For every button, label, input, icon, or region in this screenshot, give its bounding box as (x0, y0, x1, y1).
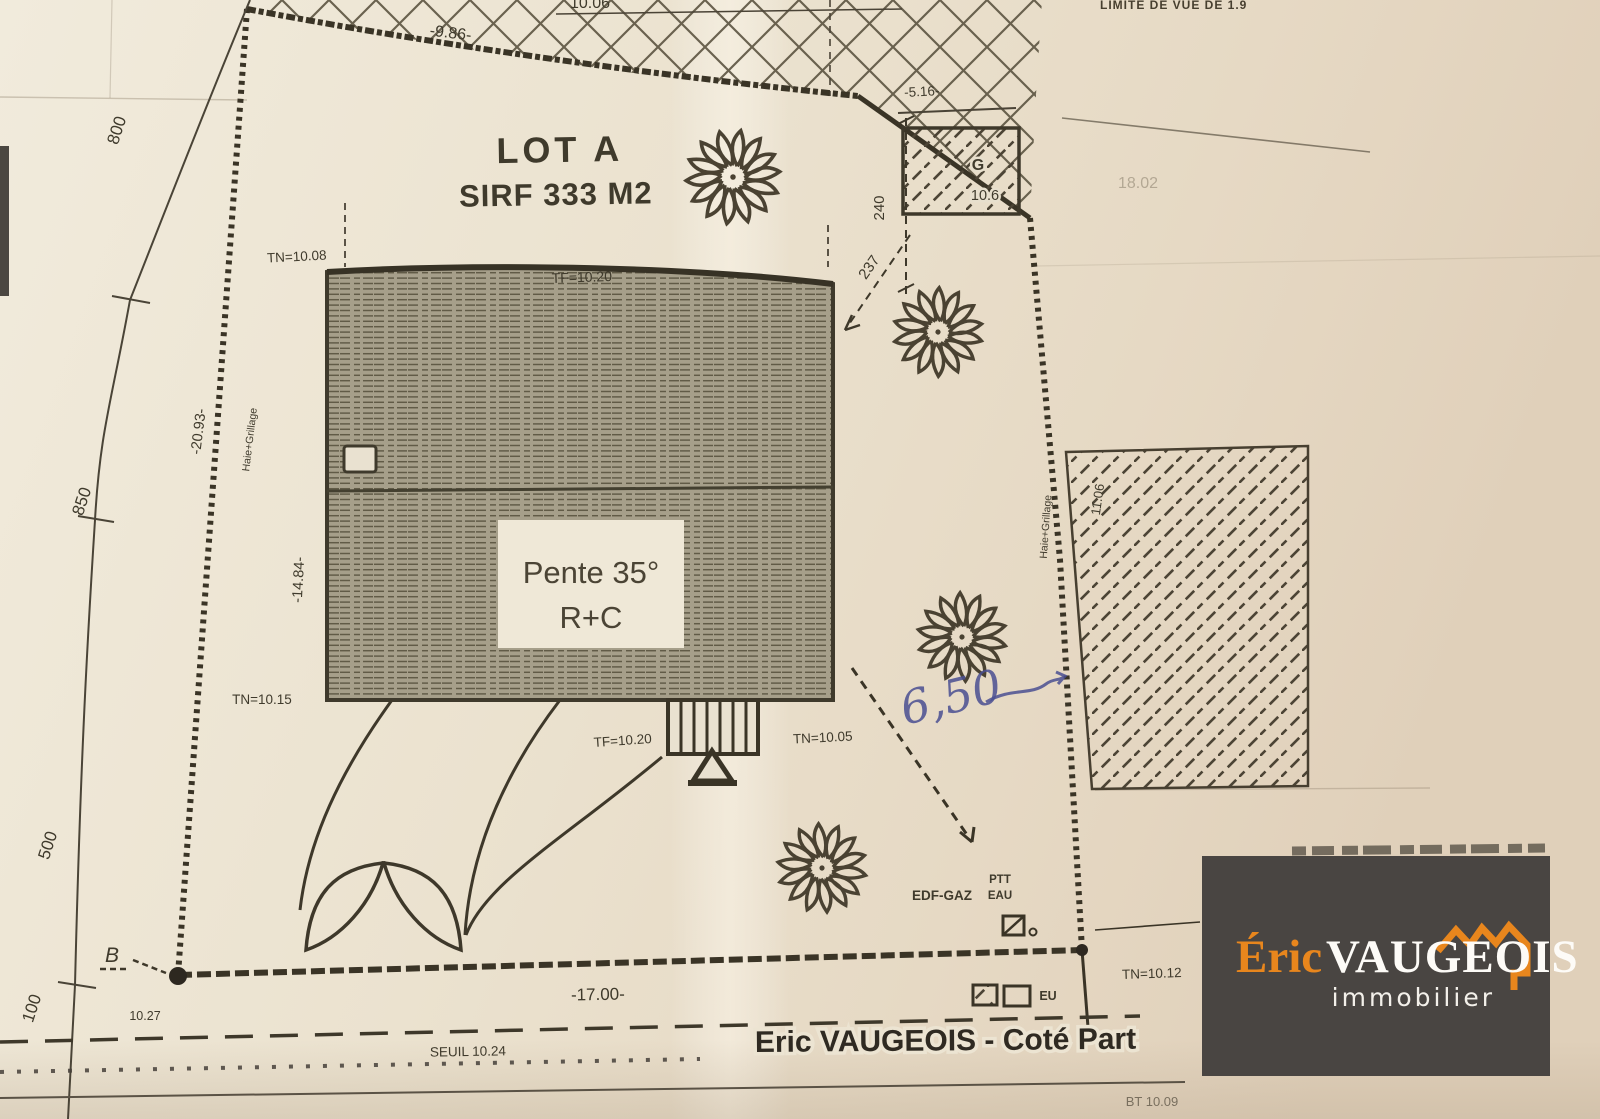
garage-hatched (903, 128, 1019, 214)
agency-logo: Éric VAUGEOIS immobilier (1202, 856, 1579, 1076)
eu-label: EU (1039, 989, 1056, 1003)
garage-label: G (972, 157, 984, 174)
bt-level: BT 10.09 (1126, 1094, 1179, 1109)
garage-level: 10.6 (971, 188, 999, 204)
tn-sw-label: TN=10.15 (232, 692, 292, 707)
corner-level: 10.27 (129, 1009, 160, 1023)
footer-credit: Eric VAUGEOIS - Coté Part (755, 1023, 1136, 1059)
logo-name-accent: Éric (1236, 931, 1322, 983)
dim-bottom: -17.00- (571, 985, 625, 1005)
lot-surface: SIRF 333 M2 (459, 175, 653, 213)
logo-tagline: immobilier (1332, 983, 1495, 1012)
edf-gaz-label: EDF-GAZ (912, 888, 972, 903)
dim-ne-width: -5.16- (904, 83, 940, 100)
limit-note: LIMITE DE VUE DE 1.9 (1100, 0, 1247, 12)
roof-rc-label: R+C (560, 600, 623, 635)
roof-pente-label: Pente 35° (523, 555, 660, 590)
house (327, 267, 833, 700)
survey-point-sw (169, 967, 187, 985)
dim-house-west: -14.84- (290, 556, 308, 603)
faint-18-02: 18.02 (1118, 175, 1158, 192)
eau-label: EAU (988, 890, 1012, 902)
point-b-label: B (105, 944, 119, 967)
scan-edge-artifact (0, 146, 9, 296)
tn-east-label: TN=10.12 (1122, 965, 1182, 982)
scanned-site-plan: 6,50 LOT A SIRF 333 M2 Pente 35° R+C TF=… (0, 0, 1600, 1119)
logo-name-main: VAUGEOIS (1326, 931, 1579, 983)
tn-nw-label: TN=10.08 (267, 247, 327, 265)
tn-se-label: TN=10.05 (793, 728, 853, 746)
tf-top-label: TF=10.20 (551, 268, 612, 286)
dim-top-cut: 10.06 (570, 0, 610, 12)
roof-window (344, 446, 376, 472)
survey-point-se (1076, 944, 1088, 956)
ptt-label: PTT (989, 874, 1011, 886)
dim-ne-depth: 240 (871, 195, 888, 220)
site-plan-drawing: 6,50 LOT A SIRF 333 M2 Pente 35° R+C TF=… (0, 0, 1600, 1119)
lot-title: LOT A (496, 128, 623, 171)
seuil-level: SEUIL 10.24 (430, 1043, 507, 1059)
